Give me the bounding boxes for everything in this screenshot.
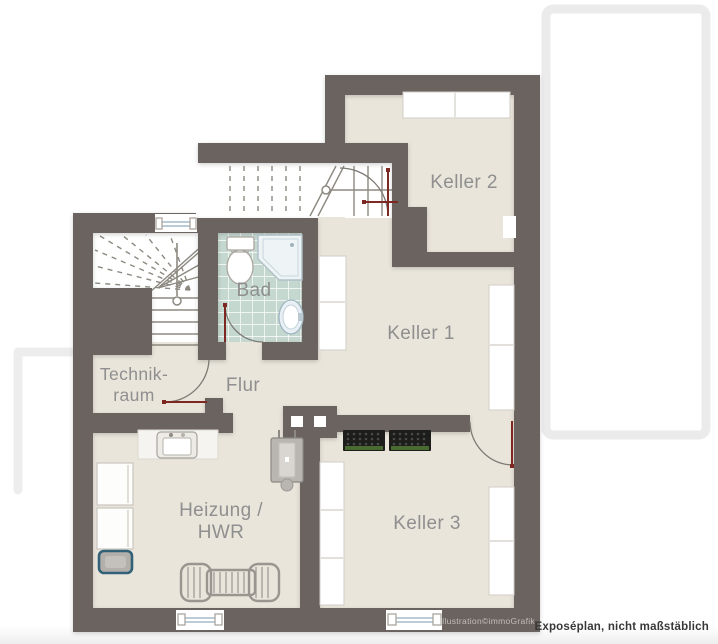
wall-niche [503, 216, 516, 238]
label-technikraum-2: raum [113, 385, 154, 405]
laundry-basket-icon [99, 551, 132, 573]
window-stairwell [155, 214, 197, 232]
washing-machine-icon [97, 463, 133, 505]
floorplan-canvas: Keller 2 Keller 1 Keller 3 Bad Flur Tech… [0, 0, 718, 644]
dryer-icon [97, 508, 133, 549]
label-technikraum-1: Technik- [100, 364, 168, 384]
window-heizung [176, 610, 224, 630]
shelf-keller2 [403, 92, 510, 118]
label-flur: Flur [226, 375, 261, 396]
window-keller3 [386, 610, 442, 630]
scale-disclaimer: Exposéplan, nicht maßstäblich [534, 621, 709, 633]
shelf-keller3-left [320, 462, 344, 605]
label-keller2: Keller 2 [430, 172, 498, 193]
floorplan-page: Keller 2 Keller 1 Keller 3 Bad Flur Tech… [0, 0, 718, 644]
shelf-keller3-right [489, 487, 514, 595]
label-keller1: Keller 1 [387, 323, 455, 344]
label-bad: Bad [236, 280, 271, 301]
exterior-outline-terrace [546, 9, 706, 435]
label-keller3: Keller 3 [393, 513, 461, 534]
shelf-keller1-left [319, 256, 346, 350]
toilet-icon [227, 237, 254, 284]
label-heizung-1: Heizung / [179, 500, 263, 521]
washbasin-icon [279, 300, 303, 334]
sink-unit-icon [138, 430, 218, 459]
label-heizung-2: HWR [198, 522, 245, 543]
shelf-keller1-right [489, 285, 514, 410]
illustrator-watermark: illustration©immoGrafik [440, 616, 535, 626]
wall-boiler-icon [271, 430, 303, 491]
